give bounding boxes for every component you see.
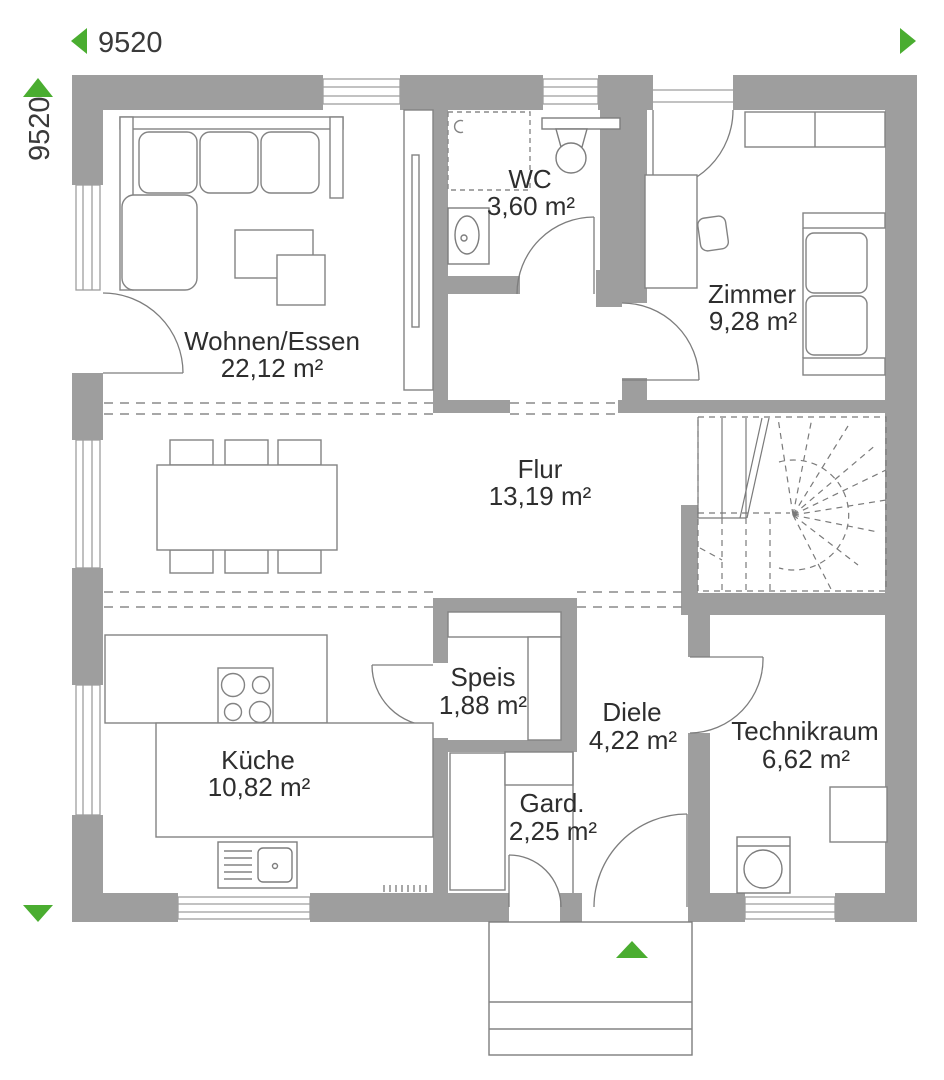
svg-text:Gard.: Gard. xyxy=(519,788,584,818)
room-label-wohnen-essen: Wohnen/Essen 22,12 m² xyxy=(184,326,360,383)
floor-plan-page: 9520 9520 Wohnen/Essen 22,12 m² WC 3,60 … xyxy=(0,0,944,1080)
porch-steps xyxy=(489,922,692,1055)
svg-text:Diele: Diele xyxy=(602,697,661,727)
room-label-technikraum: Technikraum 6,62 m² xyxy=(731,716,878,774)
svg-text:Flur: Flur xyxy=(518,454,563,484)
kitchen-counter xyxy=(105,635,327,723)
room-label-garderobe: Gard. 2,25 m² xyxy=(509,788,597,846)
shelf-zimmer xyxy=(745,112,885,147)
dimension-arrow-left-icon xyxy=(71,28,87,54)
dimension-width-label: 9520 xyxy=(98,27,163,59)
window-top-wc xyxy=(543,79,598,104)
svg-text:4,22 m²: 4,22 m² xyxy=(589,725,677,755)
svg-text:Technikraum: Technikraum xyxy=(731,716,878,746)
window-bottom-kitchen xyxy=(178,897,310,919)
window-bottom-technik xyxy=(745,897,835,919)
svg-text:13,19 m²: 13,19 m² xyxy=(489,481,592,511)
cooktop xyxy=(218,668,273,723)
svg-text:WC: WC xyxy=(508,164,551,194)
svg-text:6,62 m²: 6,62 m² xyxy=(762,744,850,774)
dining-table xyxy=(157,440,337,573)
window-left-dining xyxy=(76,440,100,568)
dimension-arrow-right-icon xyxy=(900,28,916,54)
stairs xyxy=(698,417,886,591)
svg-text:9,28 m²: 9,28 m² xyxy=(709,306,797,336)
terrace-door-living xyxy=(103,293,183,373)
speis-door xyxy=(372,665,433,726)
desk-chair xyxy=(697,215,729,252)
sideboard-living xyxy=(404,110,433,390)
svg-text:10,82 m²: 10,82 m² xyxy=(208,772,311,802)
svg-text:Zimmer: Zimmer xyxy=(708,279,796,309)
window-left-kitchen xyxy=(76,685,100,815)
window-left-living xyxy=(76,185,100,290)
svg-text:22,12 m²: 22,12 m² xyxy=(221,353,324,383)
coffee-table xyxy=(235,230,325,305)
entrance-door xyxy=(594,814,687,907)
room-label-wc: WC 3,60 m² xyxy=(487,164,575,221)
room-label-zimmer: Zimmer 9,28 m² xyxy=(708,279,797,336)
window-top-living xyxy=(323,79,400,104)
dimension-arrow-up-icon xyxy=(23,78,53,97)
bed xyxy=(803,213,885,375)
wash-basin xyxy=(448,208,489,264)
dishwasher-ticks xyxy=(384,885,426,892)
kitchen-sink xyxy=(218,842,297,888)
desk xyxy=(645,175,697,288)
dimension-arrow-down-icon xyxy=(23,905,53,922)
room-label-flur: Flur 13,19 m² xyxy=(489,454,592,511)
wc-door xyxy=(517,217,594,294)
svg-text:Küche: Küche xyxy=(221,745,295,775)
room-label-speis: Speis 1,88 m² xyxy=(439,662,527,720)
svg-text:3,60 m²: 3,60 m² xyxy=(487,191,575,221)
svg-text:1,88 m²: 1,88 m² xyxy=(439,690,527,720)
zimmer-door xyxy=(622,303,699,380)
floor-plan-drawing: 9520 9520 Wohnen/Essen 22,12 m² WC 3,60 … xyxy=(0,0,944,1080)
dimension-vertical: 9520 xyxy=(23,78,56,922)
svg-text:Wohnen/Essen: Wohnen/Essen xyxy=(184,326,360,356)
heat-pump xyxy=(830,787,887,842)
svg-text:2,25 m²: 2,25 m² xyxy=(509,816,597,846)
garderobe-door xyxy=(509,855,561,907)
washing-machine xyxy=(737,837,790,893)
svg-text:Speis: Speis xyxy=(450,662,515,692)
dimension-height-label: 9520 xyxy=(24,96,56,161)
room-label-diele: Diele 4,22 m² xyxy=(589,697,677,755)
dimension-horizontal: 9520 xyxy=(71,27,916,59)
